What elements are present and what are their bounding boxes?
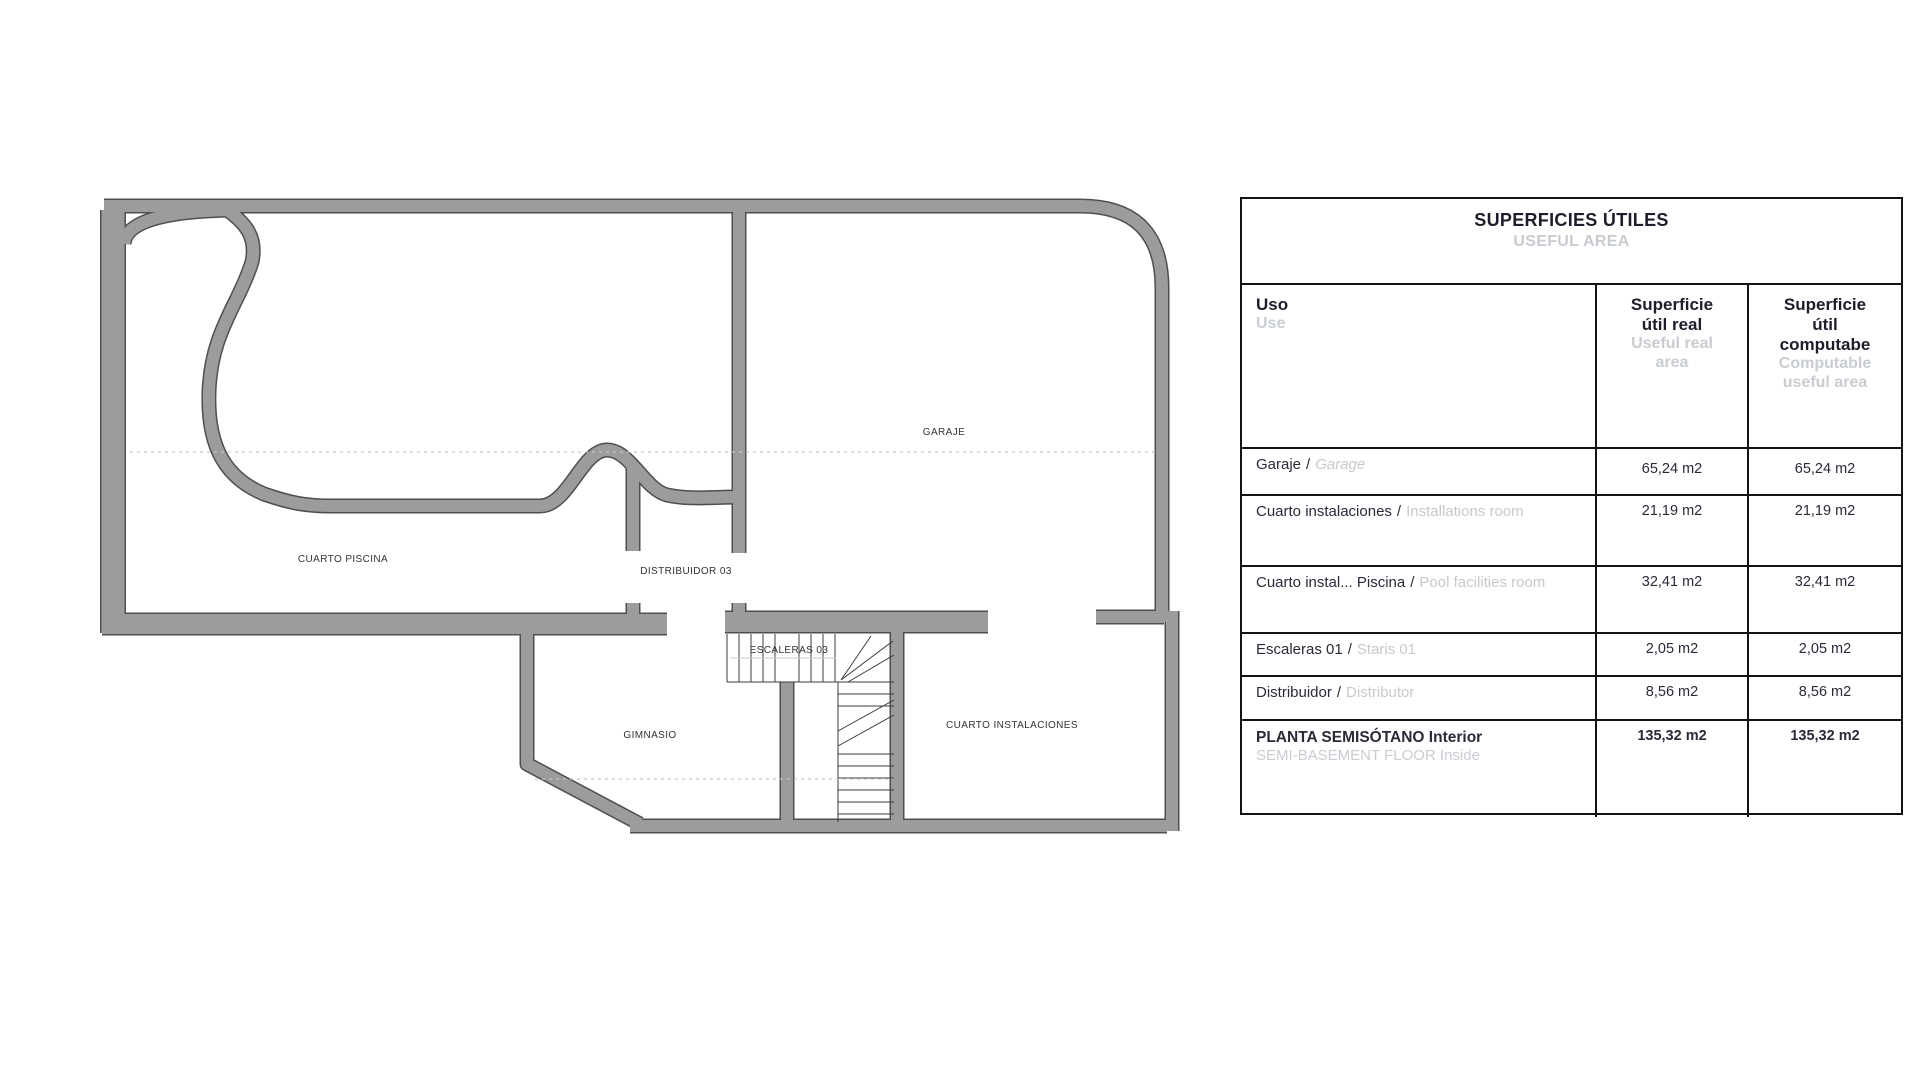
row-separator: / [1410, 574, 1414, 591]
row-real-area: 21,19 m2 [1595, 496, 1747, 565]
room-label-cuarto-instalaciones: CUARTO INSTALACIONES [946, 720, 1078, 731]
row-real-area: 135,32 m2 [1595, 721, 1747, 817]
table-row-escaleras-01: Escaleras 01/Staris 01 2,05 m2 2,05 m2 [1242, 632, 1901, 675]
row-computable-area: 32,41 m2 [1747, 567, 1901, 632]
table-row-distribuidor: Distribuidor/Distributor 8,56 m2 8,56 m2 [1242, 675, 1901, 719]
column-header-computable: Superficie útil computabe Computable use… [1747, 285, 1901, 447]
row-name-es: Cuarto instalaciones [1256, 503, 1392, 520]
row-real-area: 8,56 m2 [1595, 677, 1747, 719]
column-header-real-en: Useful real area [1616, 335, 1728, 373]
column-header-uso-en: Use [1256, 315, 1581, 334]
room-label-garaje: GARAJE [923, 427, 965, 438]
table-header-row: Uso Use Superficie útil real Useful real… [1242, 283, 1901, 447]
column-header-computable-en: Computable useful area [1769, 355, 1881, 393]
row-name-en: Pool facilities room [1419, 574, 1545, 591]
stair-treads [727, 634, 894, 822]
row-name-en: Installations room [1406, 503, 1524, 520]
row-real-area: 65,24 m2 [1595, 449, 1747, 494]
column-header-uso: Uso Use [1242, 285, 1595, 447]
column-header-uso-es: Uso [1256, 295, 1581, 315]
row-name-es: PLANTA SEMISÓTANO Interior [1256, 728, 1583, 747]
row-computable-area: 135,32 m2 [1747, 721, 1901, 817]
row-separator: / [1306, 456, 1310, 473]
room-label-gimnasio: GIMNASIO [623, 730, 676, 741]
row-computable-area: 65,24 m2 [1747, 449, 1901, 494]
row-name-es: Garaje [1256, 456, 1301, 473]
room-label-cuarto-piscina: CUARTO PISCINA [298, 554, 388, 565]
row-name-en: SEMI-BASEMENT FLOOR Inside [1256, 747, 1583, 766]
row-name-es: Cuarto instal... Piscina [1256, 574, 1405, 591]
column-header-real: Superficie útil real Useful real area [1595, 285, 1747, 447]
row-separator: / [1348, 641, 1352, 658]
column-header-computable-es: Superficie útil computabe [1769, 295, 1881, 355]
table-title-block: SUPERFICIES ÚTILES USEFUL AREA [1242, 199, 1901, 283]
table-row-cuarto-instal-piscina: Cuarto instal... Piscina/Pool facilities… [1242, 565, 1901, 632]
table-row-cuarto-instalaciones: Cuarto instalaciones/Installations room … [1242, 494, 1901, 565]
row-name-es: Distribuidor [1256, 684, 1332, 701]
table-subtitle: USEFUL AREA [1242, 232, 1901, 253]
row-real-area: 2,05 m2 [1595, 634, 1747, 675]
row-name-en: Staris 01 [1357, 641, 1416, 658]
table-title: SUPERFICIES ÚTILES [1242, 209, 1901, 232]
row-separator: / [1397, 503, 1401, 520]
row-computable-area: 8,56 m2 [1747, 677, 1901, 719]
column-header-real-es: Superficie útil real [1616, 295, 1728, 335]
page: GARAJE CUARTO PISCINA DISTRIBUIDOR 03 ES… [0, 0, 1920, 1080]
row-name-es: Escaleras 01 [1256, 641, 1343, 658]
row-computable-area: 2,05 m2 [1747, 634, 1901, 675]
row-separator: / [1337, 684, 1341, 701]
areas-table: SUPERFICIES ÚTILES USEFUL AREA Uso Use S… [1240, 197, 1903, 815]
row-real-area: 32,41 m2 [1595, 567, 1747, 632]
table-row-total-planta-semisotano: PLANTA SEMISÓTANO Interior/SEMI-BASEMENT… [1242, 719, 1901, 817]
room-label-distribuidor-03: DISTRIBUIDOR 03 [640, 566, 732, 577]
row-name-en: Distributor [1346, 684, 1414, 701]
room-label-escaleras-03: ESCALERAS 03 [750, 645, 829, 656]
row-computable-area: 21,19 m2 [1747, 496, 1901, 565]
table-row-garaje: Garaje/Garage 65,24 m2 65,24 m2 [1242, 447, 1901, 494]
row-name-en: Garage [1315, 456, 1365, 473]
